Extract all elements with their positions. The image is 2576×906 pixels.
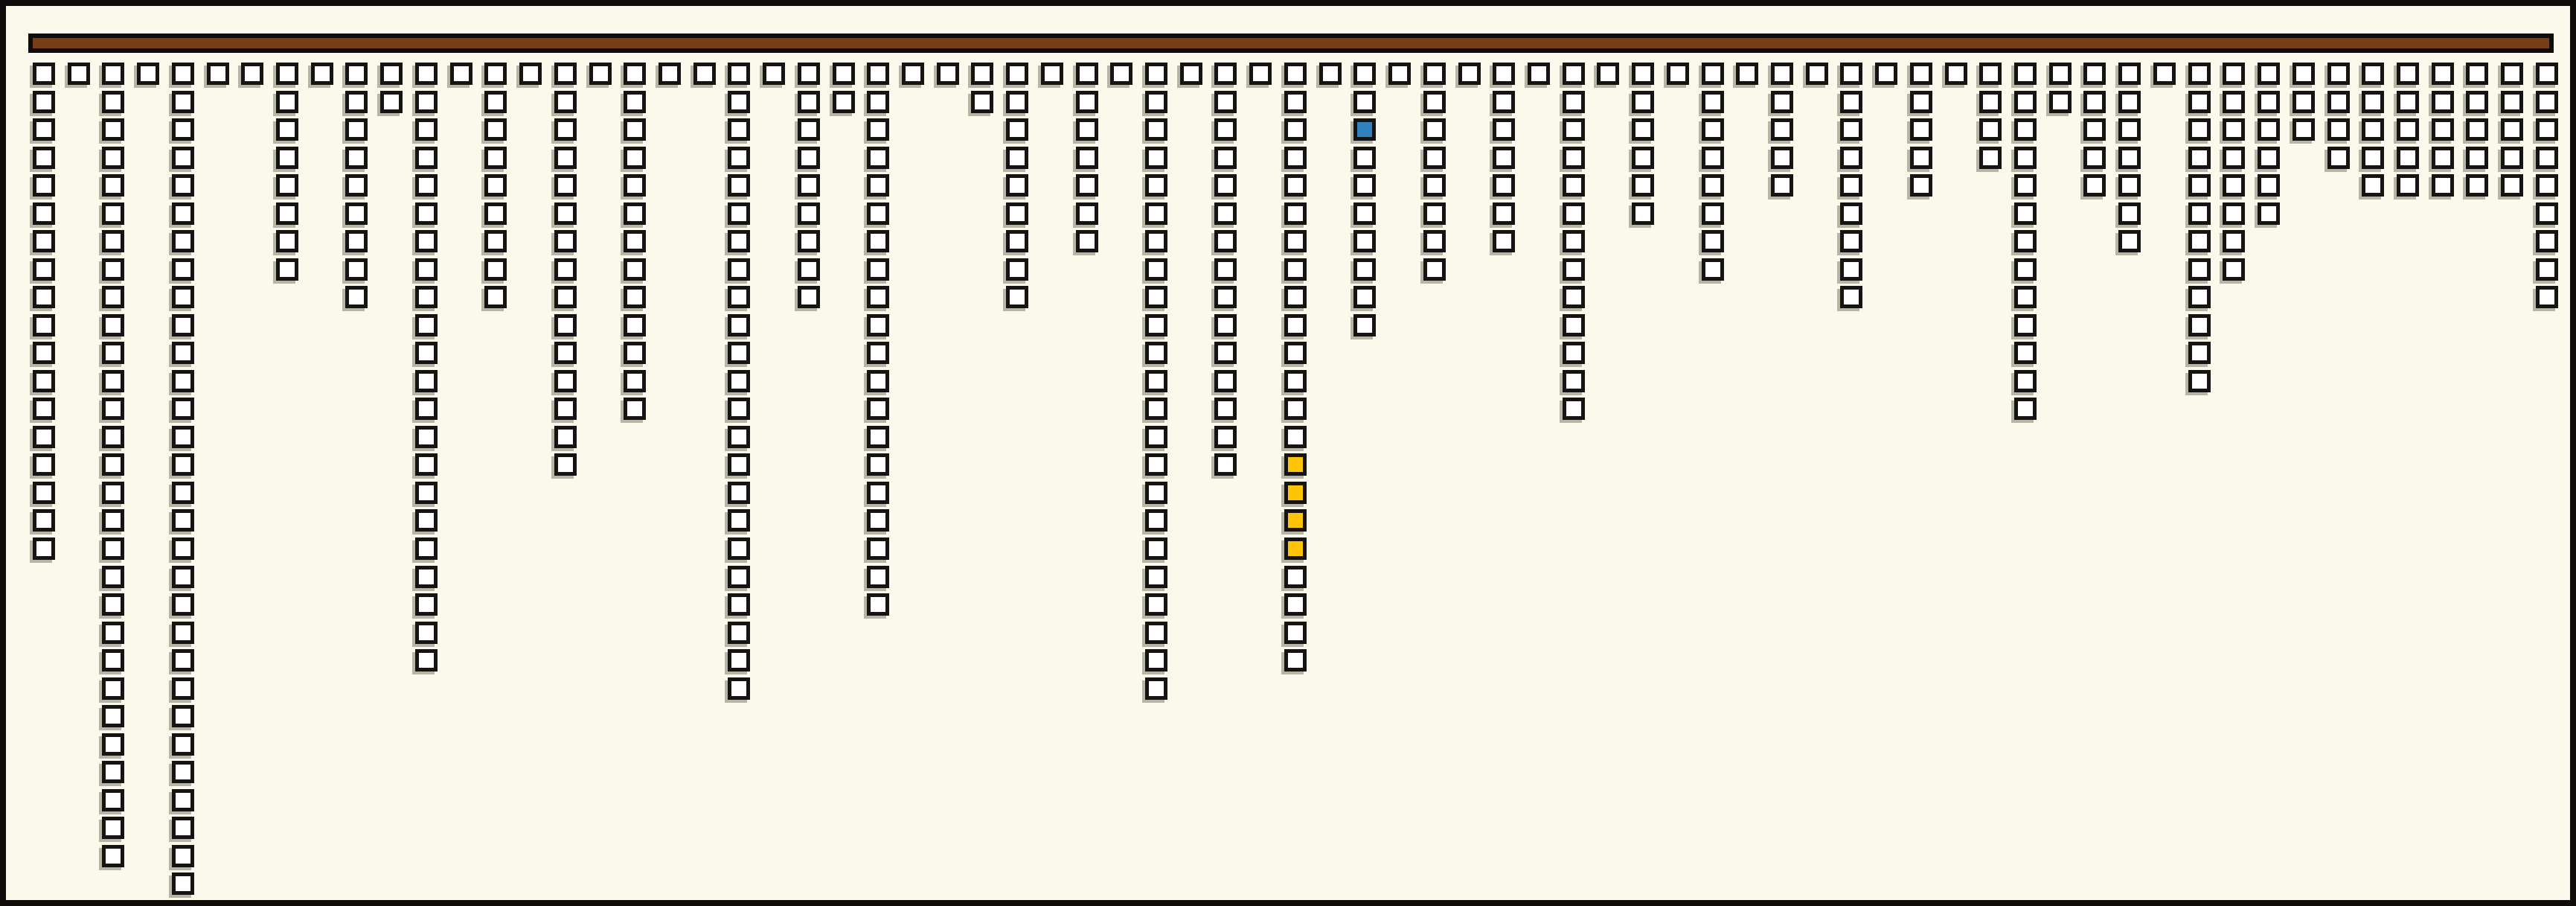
cell-col4-row17 xyxy=(172,537,194,560)
cell-col21-row0 xyxy=(763,63,785,85)
cell-col20-row3 xyxy=(728,147,750,169)
cell-col51-row0 xyxy=(1806,63,1828,85)
cell-col53-row0 xyxy=(1875,63,1897,85)
cell-col24-row6 xyxy=(867,230,889,252)
cell-col20-row13 xyxy=(728,426,750,448)
cell-col34-row8 xyxy=(1214,286,1237,308)
cell-col71-row4 xyxy=(2501,174,2523,197)
cell-col0-row2 xyxy=(33,118,55,141)
cell-col66-row0 xyxy=(2327,63,2350,85)
cell-col42-row5 xyxy=(1493,202,1515,225)
cell-col67-row3 xyxy=(2362,147,2384,169)
cell-col11-row11 xyxy=(415,370,438,392)
cell-col40-row3 xyxy=(1423,147,1446,169)
cell-col36-row17 xyxy=(1284,537,1307,560)
cell-col67-row1 xyxy=(2362,91,2384,113)
cell-col11-row16 xyxy=(415,509,438,532)
cell-col2-row26 xyxy=(102,789,124,811)
cell-col10-row1 xyxy=(380,91,403,113)
cell-col32-row14 xyxy=(1145,453,1167,476)
cell-col4-row23 xyxy=(172,705,194,727)
cell-col32-row12 xyxy=(1145,398,1167,420)
cell-col24-row17 xyxy=(867,537,889,560)
cell-col57-row9 xyxy=(2014,314,2037,336)
cell-col24-row5 xyxy=(867,202,889,225)
cell-col20-row1 xyxy=(728,91,750,113)
cell-col48-row7 xyxy=(1702,258,1724,281)
cell-col45-row0 xyxy=(1597,63,1619,85)
cell-col11-row7 xyxy=(415,258,438,281)
cell-col34-row7 xyxy=(1214,258,1237,281)
cell-col32-row19 xyxy=(1145,593,1167,616)
cell-col4-row22 xyxy=(172,677,194,700)
cell-col17-row4 xyxy=(624,174,646,197)
cell-col36-row21 xyxy=(1284,649,1307,671)
cell-col47-row0 xyxy=(1667,63,1689,85)
cell-col72-row0 xyxy=(2536,63,2558,85)
cell-col32-row22 xyxy=(1145,677,1167,700)
cell-col63-row7 xyxy=(2223,258,2245,281)
cell-col52-row8 xyxy=(1840,286,1862,308)
cell-col9-row4 xyxy=(345,174,368,197)
cell-col52-row3 xyxy=(1840,147,1862,169)
cell-col4-row12 xyxy=(172,398,194,420)
cell-col24-row16 xyxy=(867,509,889,532)
cell-col4-row7 xyxy=(172,258,194,281)
cell-col15-row13 xyxy=(554,426,577,448)
cell-col28-row7 xyxy=(1006,258,1028,281)
cell-col36-row6 xyxy=(1284,230,1307,252)
cell-col15-row12 xyxy=(554,398,577,420)
cell-col62-row6 xyxy=(2188,230,2211,252)
cell-col38-row2 xyxy=(1353,118,1376,141)
cell-col0-row0 xyxy=(33,63,55,85)
cell-col7-row3 xyxy=(276,147,298,169)
cell-col34-row5 xyxy=(1214,202,1237,225)
cell-col0-row8 xyxy=(33,286,55,308)
cell-col0-row10 xyxy=(33,342,55,364)
cell-col24-row15 xyxy=(867,482,889,504)
cell-col32-row16 xyxy=(1145,509,1167,532)
cell-col50-row4 xyxy=(1771,174,1793,197)
cell-col15-row8 xyxy=(554,286,577,308)
cell-col72-row3 xyxy=(2536,147,2558,169)
cell-col17-row0 xyxy=(624,63,646,85)
cell-col34-row4 xyxy=(1214,174,1237,197)
cell-col32-row13 xyxy=(1145,426,1167,448)
cell-col2-row20 xyxy=(102,622,124,644)
cell-col38-row7 xyxy=(1353,258,1376,281)
cell-col58-row1 xyxy=(2049,91,2072,113)
cell-col34-row0 xyxy=(1214,63,1237,85)
cell-col13-row5 xyxy=(484,202,507,225)
cell-col68-row2 xyxy=(2397,118,2419,141)
cell-col34-row1 xyxy=(1214,91,1237,113)
cell-col52-row2 xyxy=(1840,118,1862,141)
cell-col15-row7 xyxy=(554,258,577,281)
cell-col68-row0 xyxy=(2397,63,2419,85)
cell-col69-row4 xyxy=(2432,174,2454,197)
cell-col49-row0 xyxy=(1736,63,1758,85)
cell-col2-row11 xyxy=(102,370,124,392)
cell-col24-row1 xyxy=(867,91,889,113)
cell-col48-row4 xyxy=(1702,174,1724,197)
cell-col15-row9 xyxy=(554,314,577,336)
waffle-grid xyxy=(6,6,2570,900)
cell-col2-row4 xyxy=(102,174,124,197)
cell-col24-row2 xyxy=(867,118,889,141)
cell-col0-row7 xyxy=(33,258,55,281)
cell-col2-row10 xyxy=(102,342,124,364)
cell-col68-row3 xyxy=(2397,147,2419,169)
cell-col57-row0 xyxy=(2014,63,2037,85)
cell-col4-row19 xyxy=(172,593,194,616)
cell-col20-row0 xyxy=(728,63,750,85)
cell-col13-row2 xyxy=(484,118,507,141)
cell-col20-row8 xyxy=(728,286,750,308)
cell-col15-row3 xyxy=(554,147,577,169)
cell-col24-row11 xyxy=(867,370,889,392)
cell-col50-row0 xyxy=(1771,63,1793,85)
cell-col36-row1 xyxy=(1284,91,1307,113)
cell-col7-row2 xyxy=(276,118,298,141)
cell-col32-row9 xyxy=(1145,314,1167,336)
cell-col34-row12 xyxy=(1214,398,1237,420)
cell-col2-row13 xyxy=(102,426,124,448)
cell-col34-row11 xyxy=(1214,370,1237,392)
cell-col24-row12 xyxy=(867,398,889,420)
cell-col13-row3 xyxy=(484,147,507,169)
cell-col9-row2 xyxy=(345,118,368,141)
cell-col4-row6 xyxy=(172,230,194,252)
cell-col36-row20 xyxy=(1284,622,1307,644)
cell-col44-row5 xyxy=(1563,202,1585,225)
cell-col63-row0 xyxy=(2223,63,2245,85)
cell-col4-row8 xyxy=(172,286,194,308)
cell-col36-row4 xyxy=(1284,174,1307,197)
cell-col64-row0 xyxy=(2258,63,2280,85)
cell-col7-row0 xyxy=(276,63,298,85)
cell-col20-row2 xyxy=(728,118,750,141)
cell-col11-row5 xyxy=(415,202,438,225)
cell-col36-row3 xyxy=(1284,147,1307,169)
cell-col43-row0 xyxy=(1528,63,1550,85)
cell-col55-row0 xyxy=(1945,63,1967,85)
cell-col42-row6 xyxy=(1493,230,1515,252)
cell-col63-row1 xyxy=(2223,91,2245,113)
cell-col24-row0 xyxy=(867,63,889,85)
cell-col59-row1 xyxy=(2083,91,2106,113)
cell-col72-row1 xyxy=(2536,91,2558,113)
cell-col46-row1 xyxy=(1632,91,1654,113)
cell-col2-row7 xyxy=(102,258,124,281)
cell-col34-row9 xyxy=(1214,314,1237,336)
cell-col30-row0 xyxy=(1076,63,1098,85)
cell-col38-row9 xyxy=(1353,314,1376,336)
cell-col4-row13 xyxy=(172,426,194,448)
cell-col46-row5 xyxy=(1632,202,1654,225)
cell-col4-row24 xyxy=(172,733,194,756)
cell-col71-row3 xyxy=(2501,147,2523,169)
cell-col38-row0 xyxy=(1353,63,1376,85)
cell-col36-row14 xyxy=(1284,453,1307,476)
cell-col44-row6 xyxy=(1563,230,1585,252)
cell-col2-row19 xyxy=(102,593,124,616)
cell-col18-row0 xyxy=(659,63,681,85)
cell-col17-row7 xyxy=(624,258,646,281)
cell-col50-row2 xyxy=(1771,118,1793,141)
cell-col36-row2 xyxy=(1284,118,1307,141)
cell-col63-row5 xyxy=(2223,202,2245,225)
cell-col67-row0 xyxy=(2362,63,2384,85)
cell-col46-row0 xyxy=(1632,63,1654,85)
cell-col20-row10 xyxy=(728,342,750,364)
cell-col15-row10 xyxy=(554,342,577,364)
cell-col0-row17 xyxy=(33,537,55,560)
cell-col15-row14 xyxy=(554,453,577,476)
cell-col36-row7 xyxy=(1284,258,1307,281)
cell-col62-row3 xyxy=(2188,147,2211,169)
cell-col20-row21 xyxy=(728,649,750,671)
cell-col0-row15 xyxy=(33,482,55,504)
cell-col60-row3 xyxy=(2118,147,2141,169)
cell-col32-row3 xyxy=(1145,147,1167,169)
cell-col44-row1 xyxy=(1563,91,1585,113)
cell-col36-row10 xyxy=(1284,342,1307,364)
cell-col0-row9 xyxy=(33,314,55,336)
cell-col58-row0 xyxy=(2049,63,2072,85)
cell-col11-row19 xyxy=(415,593,438,616)
cell-col32-row11 xyxy=(1145,370,1167,392)
cell-col57-row12 xyxy=(2014,398,2037,420)
cell-col26-row0 xyxy=(937,63,959,85)
cell-col4-row11 xyxy=(172,370,194,392)
cell-col5-row0 xyxy=(207,63,229,85)
cell-col56-row1 xyxy=(1979,91,2002,113)
cell-col8-row0 xyxy=(311,63,333,85)
cell-col38-row8 xyxy=(1353,286,1376,308)
cell-col20-row14 xyxy=(728,453,750,476)
cell-col30-row5 xyxy=(1076,202,1098,225)
cell-col15-row6 xyxy=(554,230,577,252)
cell-col38-row4 xyxy=(1353,174,1376,197)
cell-col13-row0 xyxy=(484,63,507,85)
cell-col24-row9 xyxy=(867,314,889,336)
cell-col48-row0 xyxy=(1702,63,1724,85)
cell-col32-row8 xyxy=(1145,286,1167,308)
cell-col36-row13 xyxy=(1284,426,1307,448)
cell-col17-row2 xyxy=(624,118,646,141)
cell-col4-row3 xyxy=(172,147,194,169)
cell-col64-row2 xyxy=(2258,118,2280,141)
cell-col20-row6 xyxy=(728,230,750,252)
cell-col28-row4 xyxy=(1006,174,1028,197)
cell-col46-row3 xyxy=(1632,147,1654,169)
cell-col63-row3 xyxy=(2223,147,2245,169)
cell-col48-row1 xyxy=(1702,91,1724,113)
cell-col30-row1 xyxy=(1076,91,1098,113)
cell-col57-row1 xyxy=(2014,91,2037,113)
cell-col0-row1 xyxy=(33,91,55,113)
cell-col2-row8 xyxy=(102,286,124,308)
cell-col57-row6 xyxy=(2014,230,2037,252)
cell-col4-row15 xyxy=(172,482,194,504)
cell-col13-row8 xyxy=(484,286,507,308)
cell-col15-row11 xyxy=(554,370,577,392)
cell-col3-row0 xyxy=(137,63,159,85)
cell-col24-row8 xyxy=(867,286,889,308)
cell-col17-row10 xyxy=(624,342,646,364)
cell-col50-row3 xyxy=(1771,147,1793,169)
cell-col17-row5 xyxy=(624,202,646,225)
cell-col63-row6 xyxy=(2223,230,2245,252)
cell-col4-row25 xyxy=(172,761,194,783)
cell-col22-row1 xyxy=(798,91,820,113)
cell-col59-row4 xyxy=(2083,174,2106,197)
cell-col66-row3 xyxy=(2327,147,2350,169)
cell-col4-row16 xyxy=(172,509,194,532)
cell-col6-row0 xyxy=(241,63,263,85)
cell-col11-row13 xyxy=(415,426,438,448)
cell-col44-row0 xyxy=(1563,63,1585,85)
cell-col11-row17 xyxy=(415,537,438,560)
cell-col14-row0 xyxy=(519,63,542,85)
cell-col24-row10 xyxy=(867,342,889,364)
cell-col61-row0 xyxy=(2153,63,2176,85)
cell-col2-row0 xyxy=(102,63,124,85)
cell-col66-row2 xyxy=(2327,118,2350,141)
cell-col0-row14 xyxy=(33,453,55,476)
cell-col42-row0 xyxy=(1493,63,1515,85)
cell-col32-row7 xyxy=(1145,258,1167,281)
cell-col65-row2 xyxy=(2293,118,2315,141)
cell-col24-row18 xyxy=(867,566,889,588)
cell-col23-row1 xyxy=(833,91,855,113)
cell-col11-row10 xyxy=(415,342,438,364)
cell-col66-row1 xyxy=(2327,91,2350,113)
cell-col2-row14 xyxy=(102,453,124,476)
cell-col0-row6 xyxy=(33,230,55,252)
cell-col68-row1 xyxy=(2397,91,2419,113)
cell-col62-row7 xyxy=(2188,258,2211,281)
cell-col11-row6 xyxy=(415,230,438,252)
cell-col4-row20 xyxy=(172,622,194,644)
cell-col72-row4 xyxy=(2536,174,2558,197)
cell-col2-row15 xyxy=(102,482,124,504)
cell-col48-row6 xyxy=(1702,230,1724,252)
cell-col70-row0 xyxy=(2466,63,2488,85)
cell-col57-row5 xyxy=(2014,202,2037,225)
cell-col32-row17 xyxy=(1145,537,1167,560)
cell-col2-row23 xyxy=(102,705,124,727)
cell-col57-row4 xyxy=(2014,174,2037,197)
cell-col44-row11 xyxy=(1563,370,1585,392)
cell-col13-row6 xyxy=(484,230,507,252)
cell-col4-row10 xyxy=(172,342,194,364)
cell-col62-row8 xyxy=(2188,286,2211,308)
cell-col24-row7 xyxy=(867,258,889,281)
cell-col27-row1 xyxy=(971,91,993,113)
cell-col24-row3 xyxy=(867,147,889,169)
cell-col33-row0 xyxy=(1180,63,1202,85)
cell-col62-row5 xyxy=(2188,202,2211,225)
cell-col22-row6 xyxy=(798,230,820,252)
cell-col7-row6 xyxy=(276,230,298,252)
cell-col2-row6 xyxy=(102,230,124,252)
cell-col62-row10 xyxy=(2188,342,2211,364)
cell-col54-row4 xyxy=(1910,174,1932,197)
cell-col30-row3 xyxy=(1076,147,1098,169)
cell-col42-row4 xyxy=(1493,174,1515,197)
figure-canvas xyxy=(0,0,2576,906)
cell-col22-row5 xyxy=(798,202,820,225)
cell-col62-row9 xyxy=(2188,314,2211,336)
cell-col13-row4 xyxy=(484,174,507,197)
cell-col13-row7 xyxy=(484,258,507,281)
cell-col22-row3 xyxy=(798,147,820,169)
cell-col17-row1 xyxy=(624,91,646,113)
cell-col36-row18 xyxy=(1284,566,1307,588)
cell-col36-row8 xyxy=(1284,286,1307,308)
cell-col70-row4 xyxy=(2466,174,2488,197)
cell-col40-row7 xyxy=(1423,258,1446,281)
cell-col40-row6 xyxy=(1423,230,1446,252)
cell-col64-row4 xyxy=(2258,174,2280,197)
cell-col15-row2 xyxy=(554,118,577,141)
cell-col24-row13 xyxy=(867,426,889,448)
cell-col57-row3 xyxy=(2014,147,2037,169)
cell-col2-row24 xyxy=(102,733,124,756)
cell-col34-row3 xyxy=(1214,147,1237,169)
cell-col60-row6 xyxy=(2118,230,2141,252)
cell-col2-row27 xyxy=(102,817,124,839)
cell-col44-row3 xyxy=(1563,147,1585,169)
cell-col63-row2 xyxy=(2223,118,2245,141)
cell-col32-row21 xyxy=(1145,649,1167,671)
cell-col44-row12 xyxy=(1563,398,1585,420)
cell-col23-row0 xyxy=(833,63,855,85)
cell-col67-row4 xyxy=(2362,174,2384,197)
cell-col11-row15 xyxy=(415,482,438,504)
cell-col54-row0 xyxy=(1910,63,1932,85)
cell-col32-row15 xyxy=(1145,482,1167,504)
cell-col32-row2 xyxy=(1145,118,1167,141)
cell-col17-row8 xyxy=(624,286,646,308)
cell-col68-row4 xyxy=(2397,174,2419,197)
cell-col59-row0 xyxy=(2083,63,2106,85)
cell-col2-row21 xyxy=(102,649,124,671)
cell-col15-row1 xyxy=(554,91,577,113)
cell-col11-row2 xyxy=(415,118,438,141)
cell-col0-row13 xyxy=(33,426,55,448)
cell-col11-row3 xyxy=(415,147,438,169)
cell-col22-row4 xyxy=(798,174,820,197)
cell-col9-row8 xyxy=(345,286,368,308)
cell-col9-row6 xyxy=(345,230,368,252)
cell-col2-row12 xyxy=(102,398,124,420)
cell-col4-row21 xyxy=(172,649,194,671)
cell-col36-row0 xyxy=(1284,63,1307,85)
cell-col2-row18 xyxy=(102,566,124,588)
cell-col59-row2 xyxy=(2083,118,2106,141)
cell-col4-row18 xyxy=(172,566,194,588)
cell-col72-row7 xyxy=(2536,258,2558,281)
cell-col44-row9 xyxy=(1563,314,1585,336)
cell-col7-row7 xyxy=(276,258,298,281)
cell-col52-row0 xyxy=(1840,63,1862,85)
cell-col72-row5 xyxy=(2536,202,2558,225)
cell-col42-row1 xyxy=(1493,91,1515,113)
